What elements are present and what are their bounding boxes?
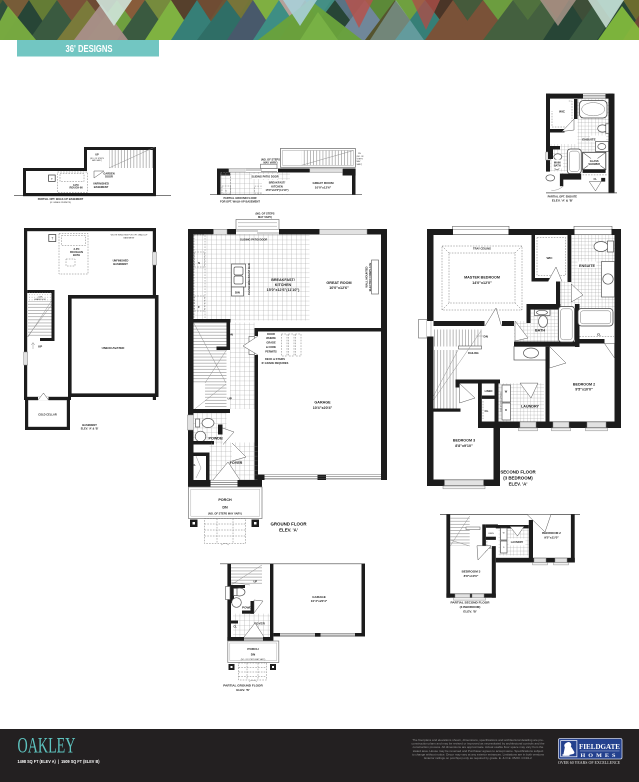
svg-text:ELECTRIC FIREPLACE: ELECTRIC FIREPLACE <box>368 263 372 292</box>
svg-text:14'0"x12'0": 14'0"x12'0" <box>472 281 492 285</box>
svg-text:OVER 60 YEARS OF EXCELLENCE: OVER 60 YEARS OF EXCELLENCE <box>558 760 620 765</box>
svg-text:ELEV. 'A' & 'B': ELEV. 'A' & 'B' <box>552 198 573 202</box>
svg-text:UNEXCAVATED: UNEXCAVATED <box>102 346 126 350</box>
svg-text:DN: DN <box>222 506 228 510</box>
svg-text:MASTER BEDROOM: MASTER BEDROOM <box>464 276 500 280</box>
svg-text:MAY VARY): MAY VARY) <box>258 215 272 219</box>
svg-text:GROUND FLOOR: GROUND FLOOR <box>270 522 307 527</box>
svg-text:BASEMENT: BASEMENT <box>123 236 135 239</box>
svg-text:ENSUITE: ENSUITE <box>582 137 595 141</box>
svg-text:(IF GRADE PERMITS): (IF GRADE PERMITS) <box>50 201 71 204</box>
svg-text:BATH: BATH <box>73 253 80 257</box>
svg-text:WALL MOUNTED: WALL MOUNTED <box>365 266 369 287</box>
svg-text:PARTIAL SECOND FLOOR: PARTIAL SECOND FLOOR <box>451 601 491 605</box>
svg-text:10'4"x20'4": 10'4"x20'4" <box>311 599 328 603</box>
svg-text:PARTIAL GROUND FLOOR: PARTIAL GROUND FLOOR <box>223 196 256 200</box>
svg-text:WHERE: WHERE <box>266 336 276 340</box>
svg-text:BREAKFAST/: BREAKFAST/ <box>269 181 286 185</box>
svg-text:15'0"x12'6"(11'10"): 15'0"x12'6"(11'10") <box>266 188 289 192</box>
svg-text:10'4"x20'4": 10'4"x20'4" <box>313 406 333 410</box>
svg-text:GRADE: GRADE <box>266 341 276 345</box>
svg-text:DW: DW <box>235 291 240 295</box>
svg-text:LINEN: LINEN <box>488 533 494 535</box>
svg-text:ELEV. 'A': ELEV. 'A' <box>279 528 298 533</box>
svg-text:ELEV. 'A': ELEV. 'A' <box>509 482 528 487</box>
svg-text:36' DESIGNS: 36' DESIGNS <box>66 44 113 55</box>
svg-text:(3 BEDROOM): (3 BEDROOM) <box>460 605 481 609</box>
svg-text:TRAY CEILING: TRAY CEILING <box>473 247 491 251</box>
svg-text:FOR OPT. WALK-UP BASEMENT: FOR OPT. WALK-UP BASEMENT <box>220 200 260 204</box>
svg-text:GREAT ROOM: GREAT ROOM <box>312 181 334 185</box>
svg-text:ROUGH-IN: ROUGH-IN <box>69 186 82 190</box>
svg-text:LAUNDRY: LAUNDRY <box>521 405 539 409</box>
svg-text:IF GRADE REQUIRES: IF GRADE REQUIRES <box>262 361 289 365</box>
svg-text:10'0"x12'6": 10'0"x12'6" <box>315 186 332 190</box>
svg-text:UNFINISHED: UNFINISHED <box>113 259 129 263</box>
svg-text:DN: DN <box>358 153 361 155</box>
svg-text:S: S <box>198 261 200 265</box>
svg-text:FLUSH BREAKFAST BAR: FLUSH BREAKFAST BAR <box>247 263 251 295</box>
svg-text:(NO. OF STEPS MAY VARY): (NO. OF STEPS MAY VARY) <box>208 512 242 516</box>
svg-text:DOOR: DOOR <box>105 175 113 179</box>
svg-text:SHOWER: SHOWER <box>588 162 600 166</box>
svg-text:BATH: BATH <box>535 329 545 333</box>
svg-text:UP: UP <box>254 580 258 584</box>
svg-text:8'8"x9'10": 8'8"x9'10" <box>455 444 473 448</box>
svg-text:& CODE: & CODE <box>266 345 276 349</box>
svg-text:MAY: MAY <box>357 160 362 163</box>
svg-text:FIELDGATE: FIELDGATE <box>579 742 620 751</box>
svg-text:UP: UP <box>95 153 99 157</box>
svg-text:9'5"x10'0": 9'5"x10'0" <box>575 388 593 392</box>
svg-text:8'8"x10'0": 8'8"x10'0" <box>464 574 479 578</box>
svg-text:COLD CELLAR: COLD CELLAR <box>38 413 57 417</box>
svg-text:BASEMENT: BASEMENT <box>94 185 109 189</box>
svg-text:10'0"x12'6": 10'0"x12'6" <box>329 286 349 290</box>
svg-text:SIDE BY SIDE UPPERS: SIDE BY SIDE UPPERS <box>501 391 503 411</box>
svg-text:ENSUITE: ENSUITE <box>579 264 596 268</box>
svg-text:ELEV. 'B': ELEV. 'B' <box>463 610 476 614</box>
svg-text:D: D <box>505 408 507 412</box>
svg-text:PORCH: PORCH <box>247 647 259 651</box>
svg-text:PORCH: PORCH <box>218 498 232 502</box>
svg-text:BEDROOM 3: BEDROOM 3 <box>462 570 481 574</box>
svg-text:GARAGE: GARAGE <box>314 401 331 405</box>
svg-text:9'5"x11'0": 9'5"x11'0" <box>544 535 559 539</box>
svg-text:FOYER: FOYER <box>230 461 243 465</box>
svg-text:GARAGE: GARAGE <box>312 595 326 599</box>
svg-text:SECOND FLOOR: SECOND FLOOR <box>500 470 536 475</box>
svg-text:DOOR: DOOR <box>267 332 275 336</box>
svg-text:DN: DN <box>484 335 489 339</box>
svg-text:LAUNDRY: LAUNDRY <box>511 540 524 544</box>
svg-text:MAY VARY): MAY VARY) <box>92 159 102 162</box>
svg-text:(NO. OF STEPS MAY VARY): (NO. OF STEPS MAY VARY) <box>241 658 266 661</box>
svg-text:OAKLEY: OAKLEY <box>18 733 76 758</box>
svg-text:VARY): VARY) <box>357 163 363 166</box>
svg-text:KITCHEN: KITCHEN <box>275 283 292 287</box>
svg-text:ELEV. 'B': ELEV. 'B' <box>236 688 249 692</box>
svg-text:KITCHEN: KITCHEN <box>271 184 283 188</box>
svg-text:BREAKFAST/: BREAKFAST/ <box>271 278 295 282</box>
svg-text:GREAT ROOM: GREAT ROOM <box>326 281 351 285</box>
svg-text:CL: CL <box>192 463 196 467</box>
svg-text:UP: UP <box>38 345 42 349</box>
svg-text:UNFINISHED: UNFINISHED <box>93 182 109 186</box>
svg-text:BATH: BATH <box>554 164 561 168</box>
svg-text:HOMES: HOMES <box>581 754 619 759</box>
svg-text:1498 SQ FT (ELEV A) | 1509 S: 1498 SQ FT (ELEV A) | 1509 SQ FT (ELEV B… <box>18 759 100 765</box>
svg-text:PARTIAL GROUND FLOOR: PARTIAL GROUND FLOOR <box>223 684 263 688</box>
svg-text:PERMITS: PERMITS <box>265 349 277 353</box>
svg-text:DECK & STAIRS: DECK & STAIRS <box>265 357 285 361</box>
svg-text:WIC: WIC <box>546 256 553 260</box>
svg-text:BASEMENT: BASEMENT <box>113 262 128 266</box>
svg-text:BEDROOM 2: BEDROOM 2 <box>542 531 561 535</box>
svg-text:DN: DN <box>251 653 256 657</box>
svg-text:DN: DN <box>229 333 234 337</box>
svg-text:UP: UP <box>228 397 232 401</box>
svg-text:F: F <box>198 305 200 309</box>
svg-text:CL: CL <box>234 625 238 629</box>
svg-text:RAILING: RAILING <box>468 351 479 355</box>
svg-text:Exterior railings on porch(es): Exterior railings on porch(es) only as r… <box>424 756 532 760</box>
svg-text:(3 BEDROOM): (3 BEDROOM) <box>503 476 533 481</box>
svg-text:ELEV. 'A' & 'B': ELEV. 'A' & 'B' <box>81 427 99 431</box>
svg-text:15'0"x12'6"(11'10"): 15'0"x12'6"(11'10") <box>267 288 300 292</box>
svg-text:BEDROOM 2: BEDROOM 2 <box>573 382 595 386</box>
svg-text:PARTIAL OPT. WALK-UP BASEMENT: PARTIAL OPT. WALK-UP BASEMENT <box>38 197 84 201</box>
svg-text:SLIDING PATIO DOOR: SLIDING PATIO DOOR <box>240 238 267 242</box>
svg-text:T: T <box>51 237 53 241</box>
svg-text:SLIDING PATIO DOOR: SLIDING PATIO DOOR <box>251 175 278 179</box>
svg-text:T: T <box>51 177 53 181</box>
svg-text:CL: CL <box>484 409 488 413</box>
svg-text:LINEN: LINEN <box>485 389 493 393</box>
svg-text:CL: CL <box>594 177 598 181</box>
svg-text:W/LITE WINDOWS FOR OPT. WALK-U: W/LITE WINDOWS FOR OPT. WALK-UP <box>111 233 148 236</box>
svg-text:HEADROOM: HEADROOM <box>34 298 46 301</box>
svg-text:W: W <box>503 533 505 535</box>
svg-text:BEDROOM 3: BEDROOM 3 <box>453 439 475 443</box>
svg-text:CL: CL <box>597 332 601 336</box>
svg-text:WIC: WIC <box>559 110 566 114</box>
svg-text:BASEMENT: BASEMENT <box>82 423 97 427</box>
